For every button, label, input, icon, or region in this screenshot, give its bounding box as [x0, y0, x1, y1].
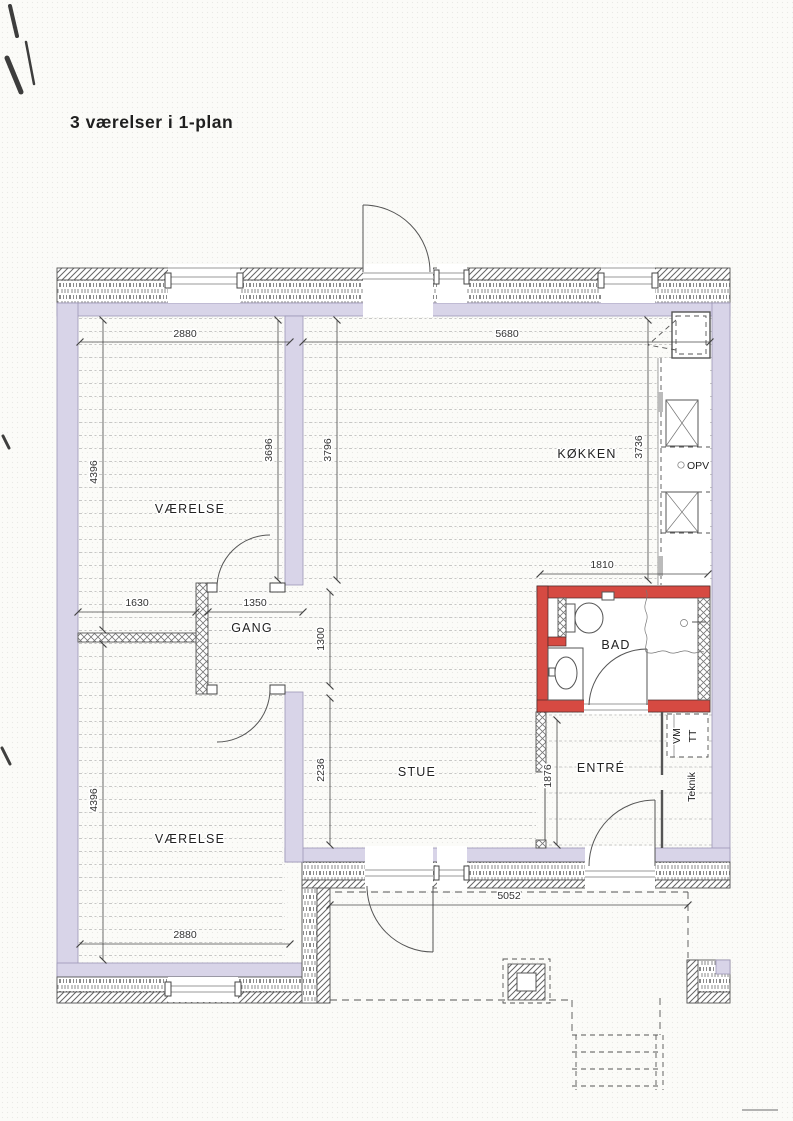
- hall-top-doorpost: [270, 583, 285, 592]
- north-door: [363, 205, 433, 317]
- room-label-bedroom-top: VÆRELSE: [155, 502, 225, 516]
- dim-label: 4396: [88, 460, 100, 484]
- window: [598, 264, 658, 303]
- bath-wall-top: [537, 586, 710, 598]
- bedrooms-divider-wall: [78, 633, 196, 642]
- bath-wall-left: [537, 586, 548, 712]
- right-wall: [712, 303, 730, 888]
- toilet-niche-wall: [558, 598, 566, 637]
- room-label-hall: GANG: [231, 621, 273, 635]
- bath-wall-right: [698, 598, 710, 700]
- terrace-wall-cladding: [317, 888, 330, 1003]
- dim-label: 3796: [322, 438, 334, 462]
- vent-box: [602, 592, 614, 600]
- label-tumble-dryer: TT: [687, 729, 699, 742]
- room-label-bedroom-bottom: VÆRELSE: [155, 832, 225, 846]
- toilet-niche-stub: [548, 637, 566, 646]
- dim-label: 1630: [125, 597, 149, 609]
- label-dishwasher: OPV: [687, 460, 709, 472]
- toilet: [566, 603, 603, 633]
- dim-label: 5052: [497, 890, 521, 902]
- entry-divider-post: [536, 840, 546, 848]
- room-label-tech: Teknik: [686, 771, 698, 802]
- scan-artifacts: [2, 6, 34, 764]
- dim-label: 1350: [243, 597, 267, 609]
- left-wall: [57, 303, 78, 1003]
- wall-bedroombottom-stue: [285, 692, 303, 862]
- scanned-floorplan-page: { "title": "3 værelser i 1-plan", "rooms…: [0, 0, 793, 1121]
- kitchen-sink: [666, 400, 698, 446]
- room-label-bath: BAD: [601, 638, 630, 652]
- terrace-column: [503, 959, 550, 1003]
- dim-label: 3696: [263, 438, 275, 462]
- hall-bottom-doorpost: [270, 685, 285, 694]
- terrace-wall-brick: [302, 888, 317, 1003]
- dim-label: 5680: [495, 328, 519, 340]
- dim-label: 4396: [88, 788, 100, 812]
- dim-label: 1810: [590, 559, 614, 571]
- floor-plan-svg: 2880 5680 4396 3696 3796 3736 1810 1630 …: [0, 0, 793, 1121]
- hall-bottom-doorpost: [207, 685, 217, 694]
- dim-label: 2236: [315, 758, 327, 782]
- dim-label: 1300: [315, 627, 327, 651]
- terrace-door-sidelight: [434, 846, 469, 890]
- washbasin: [548, 648, 583, 700]
- dim-label: 2880: [173, 328, 197, 340]
- bottom-wall-left-inner: [57, 963, 330, 977]
- sidelight-window: [434, 264, 469, 303]
- corner-block: [687, 960, 730, 1003]
- wall-bedroomtop-stue: [285, 316, 303, 585]
- dim-label: 2880: [173, 929, 197, 941]
- hall-west-wall: [196, 583, 208, 694]
- room-label-kitchen: KØKKEN: [557, 447, 616, 461]
- window: [165, 977, 241, 1002]
- room-label-entry: ENTRÉ: [577, 760, 625, 775]
- counter-handle: [658, 556, 663, 576]
- kitchen-hob: [666, 492, 698, 532]
- terrace-steps: [572, 1035, 663, 1090]
- hall-top-doorpost: [207, 583, 217, 592]
- entry-divider-wall: [536, 712, 546, 772]
- label-washing-machine: VM: [671, 728, 683, 744]
- window: [165, 264, 243, 303]
- dim-label: 1876: [542, 764, 554, 788]
- room-label-living: STUE: [398, 765, 436, 779]
- counter-handle: [658, 392, 663, 412]
- terrace-door: [365, 846, 433, 952]
- dim-label: 3736: [633, 435, 645, 459]
- bottom-wall-right-inner: [285, 848, 730, 862]
- bath-door-opening: [584, 698, 648, 714]
